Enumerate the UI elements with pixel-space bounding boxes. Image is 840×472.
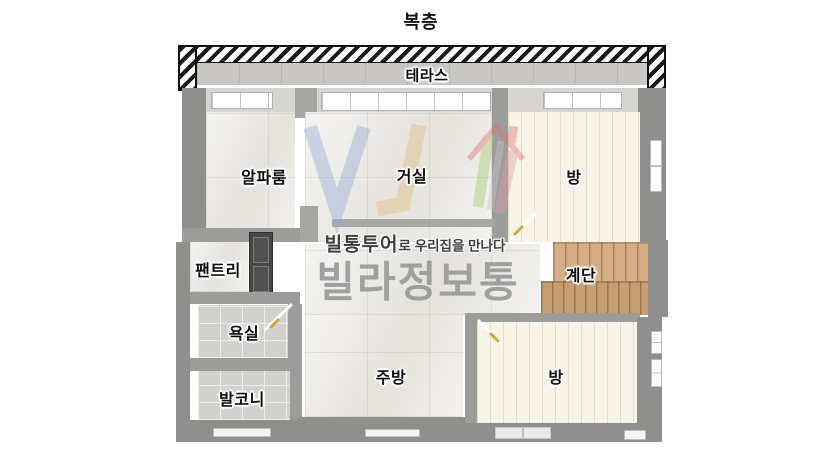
- plan-title: 복층: [403, 8, 438, 34]
- room-label-balcony: 발코니: [219, 386, 265, 410]
- terrace-hatch-wall-right: [647, 45, 666, 91]
- wall-bedroom-bottom-top: [465, 313, 640, 322]
- wall-left-lower: [176, 242, 190, 442]
- room-label-terrace: 테라스: [406, 65, 449, 86]
- room-label-living: 거실: [397, 163, 427, 187]
- kitchen-bottom-window: [365, 429, 420, 437]
- wall-bath-balcony: [190, 358, 290, 371]
- room-label-bath: 욕실: [229, 320, 259, 344]
- bottom-right-corner-vent: [624, 430, 646, 440]
- wall-living-bedroom: [492, 88, 508, 242]
- watermark-brand-large: 빌라정보통: [316, 249, 519, 310]
- living-step-ledge: [332, 219, 494, 227]
- room-label-bedroom-bottom: 방: [548, 364, 563, 388]
- bedroom-bottom-door-panels: [495, 427, 551, 439]
- wall-under-alpha: [182, 228, 312, 242]
- cabinet-door-upper: [253, 237, 269, 263]
- window-alpha: [211, 92, 273, 109]
- window-right-wall-lower-2: [651, 359, 662, 387]
- room-label-pantry: 팬트리: [195, 257, 241, 281]
- room-label-alpha: 알파룸: [241, 164, 287, 188]
- stairs-lower-run: [541, 281, 658, 315]
- wall-bedroom-bottom-left: [465, 313, 477, 427]
- floorplan-canvas: 빌통투어로 우리집을 만나다 빌라정보통 복층 테라스 알파룸 거실 방 팬트리…: [0, 0, 840, 472]
- window-bedroom-top: [543, 92, 622, 109]
- wall-right-mid: [648, 240, 668, 317]
- terrace-hatch-wall-left: [178, 45, 197, 91]
- window-right-wall-upper: [650, 140, 662, 192]
- pantry-cabinet: [249, 232, 273, 296]
- room-label-stairs: 계단: [566, 262, 596, 286]
- balcony-threshold: [213, 428, 271, 437]
- room-label-kitchen: 주방: [376, 364, 406, 388]
- wall-stub-living-pantry: [300, 206, 318, 242]
- room-label-bedroom-top: 방: [566, 164, 581, 188]
- terrace-hatch-wall-top: [178, 45, 666, 64]
- cabinet-door-lower: [253, 266, 269, 292]
- window-right-wall-lower-1: [651, 331, 662, 354]
- wall-left-upper: [182, 88, 206, 238]
- wall-under-pantry: [178, 292, 300, 304]
- window-living: [321, 92, 491, 111]
